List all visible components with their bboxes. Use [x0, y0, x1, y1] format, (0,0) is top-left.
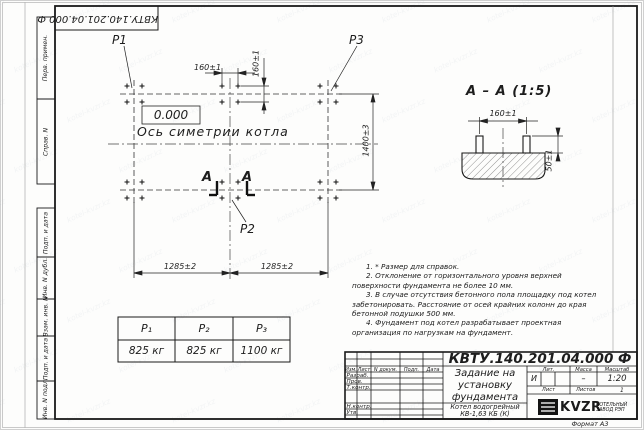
note-3: 3. В случае отсутствия бетонного пола пл… [352, 290, 604, 318]
top-stamp: КВТУ.140.201.04.000 Ф [55, 6, 158, 30]
drawing-sheet: kotel-kvzr.kzkotel-kvzr.kzkotel-kvzr.kzk… [0, 0, 644, 430]
tb-lit-header: Лит. [527, 367, 570, 373]
load-table-header-p1: P₁ [118, 317, 175, 340]
note-2: 2. Отклонение от горизонтального уровня … [352, 271, 604, 290]
section-dim-protrusion: 50±1 [545, 146, 554, 176]
tb-scale-value: 1:20 [597, 374, 637, 384]
tb-product: Котел водогрейный КВ-1,63 КБ (К) [443, 404, 527, 419]
plan-outline [120, 80, 342, 204]
dim-length-right-1285: 1285±2 [249, 262, 305, 271]
tb-mass-header: Масса [570, 367, 597, 373]
plan-dimensions [134, 58, 379, 278]
section-title: А – А (1:5) [466, 84, 552, 99]
tb-lit-value: И [527, 374, 541, 383]
cut-letter-right: А [242, 170, 252, 185]
company-sub: КОТЕЛЬНЫЙ ЗАВОД РЭП [596, 403, 627, 414]
tb-col-data: Дата [423, 367, 443, 373]
note-1: 1. * Размер для справок. [352, 262, 604, 271]
tb-sheets-header: Листов [576, 387, 595, 393]
company-logo-icon [538, 399, 558, 415]
load-table-value-p1: 825 кг [118, 340, 175, 362]
tb-sheets-count: 1 [620, 387, 624, 394]
tb-sheet-header: Лист [527, 387, 570, 393]
point-label-p2: P2 [240, 222, 255, 236]
sidebar-label-podp-data-1: Подп. и дата [37, 208, 55, 257]
cut-letter-left: А [202, 170, 212, 185]
tb-scale-header: Масштаб [597, 367, 637, 373]
sidebar-label-inv-podl: Инв. N подл. [37, 381, 55, 419]
tb-row-utv: Утв. [347, 410, 359, 416]
sidebar-label-inv-dubl: Инв. N дубл. [37, 257, 55, 299]
technical-notes: 1. * Размер для справок. 2. Отклонение о… [352, 262, 604, 337]
sidebar-label-vzam-inv: Взам. инв. N [37, 299, 55, 336]
sidebar-label-podp-data-2: Подп. и дата [37, 336, 55, 381]
dim-bolt-spacing-x: 160±1 [194, 63, 221, 72]
company-sub-line-2: ЗАВОД РЭП [596, 408, 627, 414]
load-table-header-p2: P₂ [175, 317, 233, 340]
tb-mass-value: – [570, 374, 597, 383]
anchor-bolt-marks [125, 84, 339, 201]
tb-title-line-1: Задание на [443, 368, 527, 380]
load-table-value-p3: 1100 кг [233, 340, 290, 362]
tb-product-line-2: КВ-1,63 КБ (К) [443, 411, 527, 418]
tb-col-podp: Подп. [400, 367, 423, 373]
sidebar-label-sprav-n: Справ. N [37, 99, 55, 184]
load-table-value-p2: 825 кг [175, 340, 233, 362]
sidebar-label-perv-primen: Перв. примен. [37, 17, 55, 99]
tb-row-tkontr: Т.контр. [347, 385, 371, 391]
note-4: 4. Фундамент под котел разрабатывает про… [352, 318, 604, 337]
format-label: Формат А3 [550, 420, 630, 428]
section-dim-bolt-spacing: 160±1 [479, 109, 527, 118]
dim-length-left-1285: 1285±2 [152, 262, 208, 271]
dim-width-1400: 1400±3 [362, 121, 371, 161]
tb-col-dokum: N докум. [371, 367, 400, 373]
dim-bolt-spacing-y: 160±1 [252, 49, 261, 79]
doc-number: КВТУ.140.201.04.000 Ф [443, 352, 637, 366]
tb-title: Задание на установку фундамента [443, 368, 527, 404]
elevation-value: 0.000 [142, 106, 200, 124]
point-label-p3: P3 [349, 33, 364, 47]
load-table-header-p3: P₃ [233, 317, 290, 340]
point-label-p1: P1 [112, 33, 127, 47]
axis-of-symmetry-label: Ось симетрии котла [137, 124, 289, 139]
section-view [462, 136, 545, 179]
tb-title-line-2: установку [443, 380, 527, 392]
